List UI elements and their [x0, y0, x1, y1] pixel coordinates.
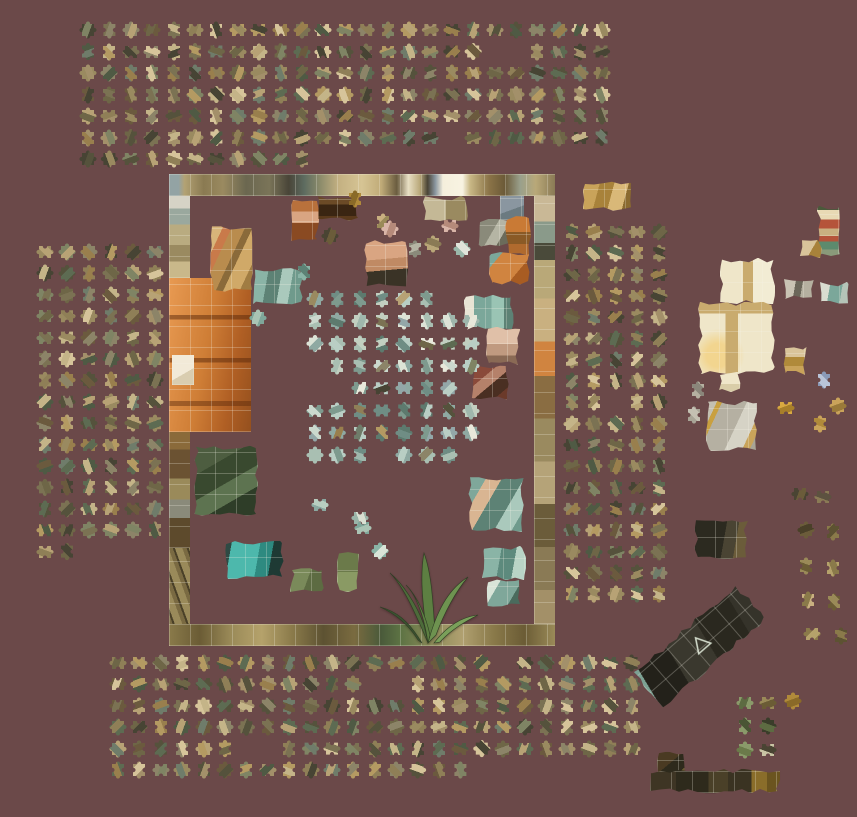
- puzzle-piece[interactable]: [560, 518, 584, 542]
- puzzle-piece[interactable]: [582, 540, 606, 564]
- puzzle-piece[interactable]: [97, 61, 121, 85]
- cluster-grey-pair[interactable]: [478, 219, 510, 247]
- puzzle-piece[interactable]: [625, 348, 649, 372]
- puzzle-piece[interactable]: [461, 126, 485, 150]
- cluster-peach-boot[interactable]: [364, 240, 408, 288]
- puzzle-piece[interactable]: [560, 327, 584, 351]
- puzzle-piece[interactable]: [290, 104, 314, 128]
- puzzle-piece[interactable]: [625, 497, 649, 521]
- puzzle-piece[interactable]: [290, 83, 314, 107]
- puzzle-piece[interactable]: [418, 61, 442, 85]
- puzzle-piece[interactable]: [647, 263, 671, 287]
- puzzle-piece[interactable]: [582, 582, 606, 606]
- puzzle-piece[interactable]: [483, 126, 507, 150]
- cluster-orange-tall[interactable]: [505, 216, 531, 256]
- puzzle-piece[interactable]: [427, 694, 451, 718]
- puzzle-piece[interactable]: [277, 737, 301, 761]
- puzzle-piece[interactable]: [226, 147, 250, 171]
- puzzle-piece[interactable]: [491, 737, 515, 761]
- puzzle-piece[interactable]: [598, 651, 622, 675]
- puzzle-piece[interactable]: [33, 283, 57, 307]
- puzzle-piece[interactable]: [582, 327, 606, 351]
- puzzle-piece[interactable]: [826, 394, 850, 418]
- puzzle-piece[interactable]: [560, 561, 584, 585]
- puzzle-piece[interactable]: [192, 651, 216, 675]
- puzzle-piece[interactable]: [76, 147, 100, 171]
- puzzle-piece[interactable]: [590, 126, 614, 150]
- puzzle-piece[interactable]: [647, 284, 671, 308]
- cluster-green-dark[interactable]: [194, 446, 258, 516]
- puzzle-piece[interactable]: [470, 651, 494, 675]
- puzzle-piece[interactable]: [590, 104, 614, 128]
- puzzle-piece[interactable]: [513, 737, 537, 761]
- puzzle-piece[interactable]: [647, 518, 671, 542]
- puzzle-piece[interactable]: [290, 18, 314, 42]
- puzzle-piece[interactable]: [547, 40, 571, 64]
- puzzle-piece[interactable]: [77, 497, 101, 521]
- puzzle-piece[interactable]: [440, 104, 464, 128]
- puzzle-piece[interactable]: [33, 454, 57, 478]
- puzzle-piece[interactable]: [427, 737, 451, 761]
- puzzle-piece[interactable]: [76, 104, 100, 128]
- puzzle-piece[interactable]: [582, 518, 606, 542]
- puzzle-piece[interactable]: [119, 104, 143, 128]
- puzzle-piece[interactable]: [143, 454, 167, 478]
- cluster-chalkboard[interactable]: [632, 583, 768, 710]
- puzzle-piece[interactable]: [577, 737, 601, 761]
- cluster-teal-pot[interactable]: [253, 268, 303, 306]
- puzzle-piece[interactable]: [448, 672, 472, 696]
- puzzle-piece[interactable]: [99, 497, 123, 521]
- cluster-window-tab[interactable]: [718, 372, 742, 392]
- puzzle-piece[interactable]: [33, 390, 57, 414]
- puzzle-piece[interactable]: [647, 561, 671, 585]
- puzzle-piece[interactable]: [384, 758, 408, 782]
- puzzle-piece[interactable]: [376, 104, 400, 128]
- puzzle-piece[interactable]: [76, 40, 100, 64]
- puzzle-piece[interactable]: [647, 454, 671, 478]
- puzzle-piece[interactable]: [290, 61, 314, 85]
- puzzle-piece[interactable]: [269, 104, 293, 128]
- puzzle-piece[interactable]: [647, 582, 671, 606]
- puzzle-piece[interactable]: [534, 694, 558, 718]
- puzzle-piece[interactable]: [598, 715, 622, 739]
- puzzle-piece[interactable]: [76, 61, 100, 85]
- puzzle-piece[interactable]: [127, 737, 151, 761]
- puzzle-piece[interactable]: [140, 61, 164, 85]
- puzzle-piece[interactable]: [821, 556, 845, 580]
- puzzle-piece[interactable]: [119, 147, 143, 171]
- puzzle-piece[interactable]: [568, 126, 592, 150]
- puzzle-piece[interactable]: [555, 737, 579, 761]
- puzzle-piece[interactable]: [77, 411, 101, 435]
- puzzle-piece[interactable]: [582, 412, 606, 436]
- puzzle-piece[interactable]: [604, 263, 628, 287]
- puzzle-piece[interactable]: [582, 348, 606, 372]
- puzzle-piece[interactable]: [582, 390, 606, 414]
- puzzle-piece[interactable]: [55, 368, 79, 392]
- puzzle-piece[interactable]: [277, 672, 301, 696]
- puzzle-piece[interactable]: [99, 390, 123, 414]
- puzzle-piece[interactable]: [55, 475, 79, 499]
- puzzle-piece[interactable]: [320, 737, 344, 761]
- puzzle-piece[interactable]: [99, 411, 123, 435]
- puzzle-piece[interactable]: [320, 694, 344, 718]
- puzzle-piece[interactable]: [483, 61, 507, 85]
- puzzle-piece[interactable]: [461, 40, 485, 64]
- puzzle-piece[interactable]: [555, 715, 579, 739]
- puzzle-piece[interactable]: [418, 104, 442, 128]
- puzzle-piece[interactable]: [647, 369, 671, 393]
- puzzle-piece[interactable]: [127, 694, 151, 718]
- puzzle-piece[interactable]: [560, 241, 584, 265]
- puzzle-piece[interactable]: [333, 40, 357, 64]
- puzzle-piece[interactable]: [170, 694, 194, 718]
- puzzle-piece[interactable]: [76, 126, 100, 150]
- puzzle-piece[interactable]: [55, 433, 79, 457]
- puzzle-piece[interactable]: [299, 715, 323, 739]
- puzzle-piece[interactable]: [97, 147, 121, 171]
- puzzle-piece[interactable]: [77, 347, 101, 371]
- puzzle-piece[interactable]: [604, 369, 628, 393]
- puzzle-piece[interactable]: [143, 347, 167, 371]
- puzzle-piece[interactable]: [256, 715, 280, 739]
- puzzle-piece[interactable]: [604, 433, 628, 457]
- puzzle-piece[interactable]: [140, 126, 164, 150]
- puzzle-piece[interactable]: [99, 454, 123, 478]
- puzzle-piece[interactable]: [119, 61, 143, 85]
- puzzle-piece[interactable]: [213, 672, 237, 696]
- puzzle-piece[interactable]: [149, 715, 173, 739]
- cluster-grey-patch[interactable]: [706, 401, 758, 451]
- puzzle-piece[interactable]: [99, 347, 123, 371]
- puzzle-piece[interactable]: [376, 61, 400, 85]
- puzzle-piece[interactable]: [418, 40, 442, 64]
- puzzle-piece[interactable]: [320, 758, 344, 782]
- puzzle-piece[interactable]: [170, 715, 194, 739]
- puzzle-piece[interactable]: [620, 694, 644, 718]
- cluster-olive-tall[interactable]: [337, 552, 359, 592]
- puzzle-piece[interactable]: [470, 737, 494, 761]
- puzzle-piece[interactable]: [121, 497, 145, 521]
- puzzle-piece[interactable]: [170, 651, 194, 675]
- puzzle-piece[interactable]: [483, 83, 507, 107]
- puzzle-piece[interactable]: [162, 126, 186, 150]
- cluster-tan-pair-top[interactable]: [423, 196, 469, 222]
- puzzle-piece[interactable]: [577, 694, 601, 718]
- puzzle-piece[interactable]: [534, 737, 558, 761]
- puzzle-piece[interactable]: [77, 454, 101, 478]
- puzzle-piece[interactable]: [213, 651, 237, 675]
- puzzle-piece[interactable]: [121, 283, 145, 307]
- puzzle-piece[interactable]: [269, 83, 293, 107]
- puzzle-piece[interactable]: [119, 18, 143, 42]
- puzzle-piece[interactable]: [183, 83, 207, 107]
- puzzle-piece[interactable]: [99, 261, 123, 285]
- puzzle-piece[interactable]: [256, 651, 280, 675]
- puzzle-piece[interactable]: [290, 147, 314, 171]
- puzzle-piece[interactable]: [162, 18, 186, 42]
- puzzle-piece[interactable]: [604, 305, 628, 329]
- puzzle-piece[interactable]: [121, 411, 145, 435]
- puzzle-piece[interactable]: [341, 715, 365, 739]
- puzzle-piece[interactable]: [143, 475, 167, 499]
- puzzle-piece[interactable]: [625, 220, 649, 244]
- puzzle-piece[interactable]: [333, 18, 357, 42]
- puzzle-piece[interactable]: [162, 104, 186, 128]
- puzzle-piece[interactable]: [406, 737, 430, 761]
- puzzle-piece[interactable]: [774, 396, 798, 420]
- puzzle-piece[interactable]: [647, 327, 671, 351]
- puzzle-piece[interactable]: [299, 694, 323, 718]
- puzzle-piece[interactable]: [427, 672, 451, 696]
- cluster-teal-low2[interactable]: [486, 578, 522, 608]
- puzzle-piece[interactable]: [119, 40, 143, 64]
- puzzle-piece[interactable]: [406, 651, 430, 675]
- puzzle-piece[interactable]: [560, 582, 584, 606]
- puzzle-piece[interactable]: [582, 454, 606, 478]
- puzzle-piece[interactable]: [121, 347, 145, 371]
- puzzle-piece[interactable]: [33, 518, 57, 542]
- puzzle-piece[interactable]: [625, 369, 649, 393]
- puzzle-piece[interactable]: [143, 261, 167, 285]
- puzzle-piece[interactable]: [183, 126, 207, 150]
- puzzle-piece[interactable]: [99, 368, 123, 392]
- puzzle-piece[interactable]: [99, 433, 123, 457]
- puzzle-piece[interactable]: [376, 18, 400, 42]
- puzzle-piece[interactable]: [213, 694, 237, 718]
- puzzle-piece[interactable]: [560, 284, 584, 308]
- puzzle-piece[interactable]: [560, 433, 584, 457]
- puzzle-piece[interactable]: [269, 40, 293, 64]
- puzzle-piece[interactable]: [625, 412, 649, 436]
- puzzle-piece[interactable]: [560, 454, 584, 478]
- puzzle-piece[interactable]: [311, 104, 335, 128]
- puzzle-piece[interactable]: [582, 220, 606, 244]
- puzzle-piece[interactable]: [604, 348, 628, 372]
- puzzle-piece[interactable]: [625, 476, 649, 500]
- cluster-dark-small[interactable]: [694, 519, 748, 559]
- puzzle-piece[interactable]: [560, 263, 584, 287]
- puzzle-piece[interactable]: [213, 715, 237, 739]
- puzzle-piece[interactable]: [440, 18, 464, 42]
- puzzle-piece[interactable]: [320, 672, 344, 696]
- puzzle-piece[interactable]: [384, 694, 408, 718]
- puzzle-piece[interactable]: [354, 126, 378, 150]
- puzzle-piece[interactable]: [625, 582, 649, 606]
- puzzle-piece[interactable]: [277, 651, 301, 675]
- puzzle-piece[interactable]: [226, 83, 250, 107]
- puzzle-piece[interactable]: [647, 390, 671, 414]
- puzzle-piece[interactable]: [811, 485, 835, 509]
- puzzle-piece[interactable]: [560, 348, 584, 372]
- puzzle-piece[interactable]: [97, 104, 121, 128]
- puzzle-piece[interactable]: [625, 284, 649, 308]
- puzzle-piece[interactable]: [33, 411, 57, 435]
- puzzle-piece[interactable]: [55, 240, 79, 264]
- puzzle-piece[interactable]: [226, 61, 250, 85]
- puzzle-piece[interactable]: [247, 61, 271, 85]
- puzzle-piece[interactable]: [55, 518, 79, 542]
- puzzle-piece[interactable]: [733, 714, 757, 738]
- puzzle-piece[interactable]: [33, 368, 57, 392]
- puzzle-piece[interactable]: [121, 261, 145, 285]
- puzzle-piece[interactable]: [143, 411, 167, 435]
- puzzle-piece[interactable]: [121, 368, 145, 392]
- puzzle-piece[interactable]: [604, 241, 628, 265]
- puzzle-piece[interactable]: [234, 758, 258, 782]
- puzzle-piece[interactable]: [76, 83, 100, 107]
- cluster-grey-pair-2[interactable]: [782, 278, 814, 300]
- puzzle-piece[interactable]: [555, 651, 579, 675]
- puzzle-piece[interactable]: [513, 715, 537, 739]
- puzzle-piece[interactable]: [560, 476, 584, 500]
- puzzle-piece[interactable]: [234, 694, 258, 718]
- puzzle-piece[interactable]: [620, 737, 644, 761]
- cluster-window-top[interactable]: [720, 258, 775, 304]
- puzzle-piece[interactable]: [547, 61, 571, 85]
- puzzle-piece[interactable]: [384, 651, 408, 675]
- puzzle-piece[interactable]: [277, 758, 301, 782]
- puzzle-piece[interactable]: [560, 390, 584, 414]
- cluster-window-main[interactable]: [698, 302, 775, 374]
- puzzle-piece[interactable]: [504, 126, 528, 150]
- puzzle-piece[interactable]: [77, 283, 101, 307]
- puzzle-piece[interactable]: [547, 126, 571, 150]
- puzzle-piece[interactable]: [247, 83, 271, 107]
- puzzle-piece[interactable]: [97, 126, 121, 150]
- puzzle-piece[interactable]: [582, 476, 606, 500]
- puzzle-piece[interactable]: [204, 18, 228, 42]
- puzzle-piece[interactable]: [568, 83, 592, 107]
- puzzle-piece[interactable]: [269, 18, 293, 42]
- puzzle-piece[interactable]: [311, 61, 335, 85]
- puzzle-piece[interactable]: [647, 433, 671, 457]
- assembled-plant-cluster[interactable]: [372, 545, 484, 645]
- puzzle-piece[interactable]: [140, 18, 164, 42]
- puzzle-piece[interactable]: [162, 83, 186, 107]
- puzzle-piece[interactable]: [99, 304, 123, 328]
- puzzle-piece[interactable]: [99, 475, 123, 499]
- puzzle-piece[interactable]: [55, 390, 79, 414]
- puzzle-piece[interactable]: [555, 672, 579, 696]
- puzzle-piece[interactable]: [33, 326, 57, 350]
- puzzle-piece[interactable]: [504, 83, 528, 107]
- puzzle-piece[interactable]: [121, 454, 145, 478]
- puzzle-piece[interactable]: [598, 672, 622, 696]
- puzzle-piece[interactable]: [448, 758, 472, 782]
- puzzle-piece[interactable]: [77, 518, 101, 542]
- puzzle-piece[interactable]: [121, 326, 145, 350]
- puzzle-piece[interactable]: [192, 737, 216, 761]
- puzzle-piece[interactable]: [290, 126, 314, 150]
- puzzle-piece[interactable]: [461, 104, 485, 128]
- puzzle-piece[interactable]: [647, 241, 671, 265]
- puzzle-piece[interactable]: [812, 368, 836, 392]
- puzzle-piece[interactable]: [183, 40, 207, 64]
- puzzle-piece[interactable]: [461, 83, 485, 107]
- puzzle-piece[interactable]: [143, 304, 167, 328]
- puzzle-piece[interactable]: [269, 126, 293, 150]
- puzzle-piece[interactable]: [625, 433, 649, 457]
- puzzle-piece[interactable]: [647, 497, 671, 521]
- puzzle-piece[interactable]: [647, 476, 671, 500]
- puzzle-piece[interactable]: [598, 737, 622, 761]
- puzzle-piece[interactable]: [320, 715, 344, 739]
- puzzle-piece[interactable]: [440, 40, 464, 64]
- puzzle-piece[interactable]: [604, 561, 628, 585]
- puzzle-piece[interactable]: [192, 672, 216, 696]
- puzzle-piece[interactable]: [363, 694, 387, 718]
- puzzle-piece[interactable]: [99, 283, 123, 307]
- puzzle-piece[interactable]: [625, 241, 649, 265]
- cluster-olive-pair[interactable]: [290, 568, 324, 594]
- puzzle-piece[interactable]: [341, 758, 365, 782]
- puzzle-piece[interactable]: [376, 126, 400, 150]
- puzzle-piece[interactable]: [821, 520, 845, 544]
- puzzle-piece[interactable]: [604, 220, 628, 244]
- puzzle-canvas[interactable]: [0, 0, 857, 817]
- puzzle-piece[interactable]: [106, 672, 130, 696]
- puzzle-piece[interactable]: [226, 126, 250, 150]
- puzzle-piece[interactable]: [127, 715, 151, 739]
- puzzle-piece[interactable]: [560, 412, 584, 436]
- puzzle-piece[interactable]: [376, 40, 400, 64]
- cluster-tan-small[interactable]: [800, 238, 822, 258]
- puzzle-piece[interactable]: [170, 672, 194, 696]
- puzzle-piece[interactable]: [354, 83, 378, 107]
- puzzle-piece[interactable]: [756, 691, 780, 715]
- puzzle-piece[interactable]: [604, 412, 628, 436]
- puzzle-piece[interactable]: [256, 672, 280, 696]
- cluster-tan-pair-right[interactable]: [783, 345, 807, 375]
- puzzle-piece[interactable]: [149, 672, 173, 696]
- puzzle-piece[interactable]: [33, 304, 57, 328]
- puzzle-piece[interactable]: [604, 582, 628, 606]
- puzzle-piece[interactable]: [97, 40, 121, 64]
- puzzle-piece[interactable]: [604, 454, 628, 478]
- puzzle-piece[interactable]: [406, 758, 430, 782]
- puzzle-piece[interactable]: [568, 61, 592, 85]
- puzzle-piece[interactable]: [33, 261, 57, 285]
- puzzle-piece[interactable]: [143, 518, 167, 542]
- puzzle-piece[interactable]: [448, 737, 472, 761]
- puzzle-piece[interactable]: [269, 147, 293, 171]
- puzzle-piece[interactable]: [547, 83, 571, 107]
- puzzle-piece[interactable]: [625, 327, 649, 351]
- puzzle-piece[interactable]: [354, 104, 378, 128]
- puzzle-piece[interactable]: [796, 588, 820, 612]
- puzzle-piece[interactable]: [234, 651, 258, 675]
- cluster-peach-vase[interactable]: [486, 327, 520, 365]
- puzzle-piece[interactable]: [277, 694, 301, 718]
- puzzle-piece[interactable]: [299, 672, 323, 696]
- puzzle-piece[interactable]: [290, 40, 314, 64]
- puzzle-piece[interactable]: [808, 412, 832, 436]
- puzzle-piece[interactable]: [333, 126, 357, 150]
- puzzle-piece[interactable]: [604, 327, 628, 351]
- puzzle-piece[interactable]: [204, 147, 228, 171]
- puzzle-piece[interactable]: [192, 694, 216, 718]
- puzzle-piece[interactable]: [491, 715, 515, 739]
- puzzle-piece[interactable]: [204, 126, 228, 150]
- puzzle-piece[interactable]: [33, 347, 57, 371]
- puzzle-piece[interactable]: [397, 126, 421, 150]
- puzzle-piece[interactable]: [560, 497, 584, 521]
- puzzle-piece[interactable]: [143, 326, 167, 350]
- puzzle-piece[interactable]: [625, 305, 649, 329]
- puzzle-piece[interactable]: [149, 651, 173, 675]
